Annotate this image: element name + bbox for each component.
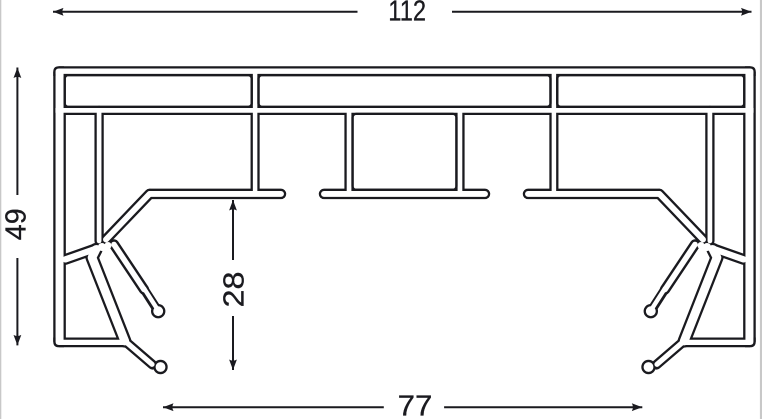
svg-text:112: 112 — [388, 0, 426, 28]
svg-text:49: 49 — [0, 208, 32, 240]
svg-text:28: 28 — [218, 272, 250, 308]
svg-text:77: 77 — [398, 390, 433, 419]
